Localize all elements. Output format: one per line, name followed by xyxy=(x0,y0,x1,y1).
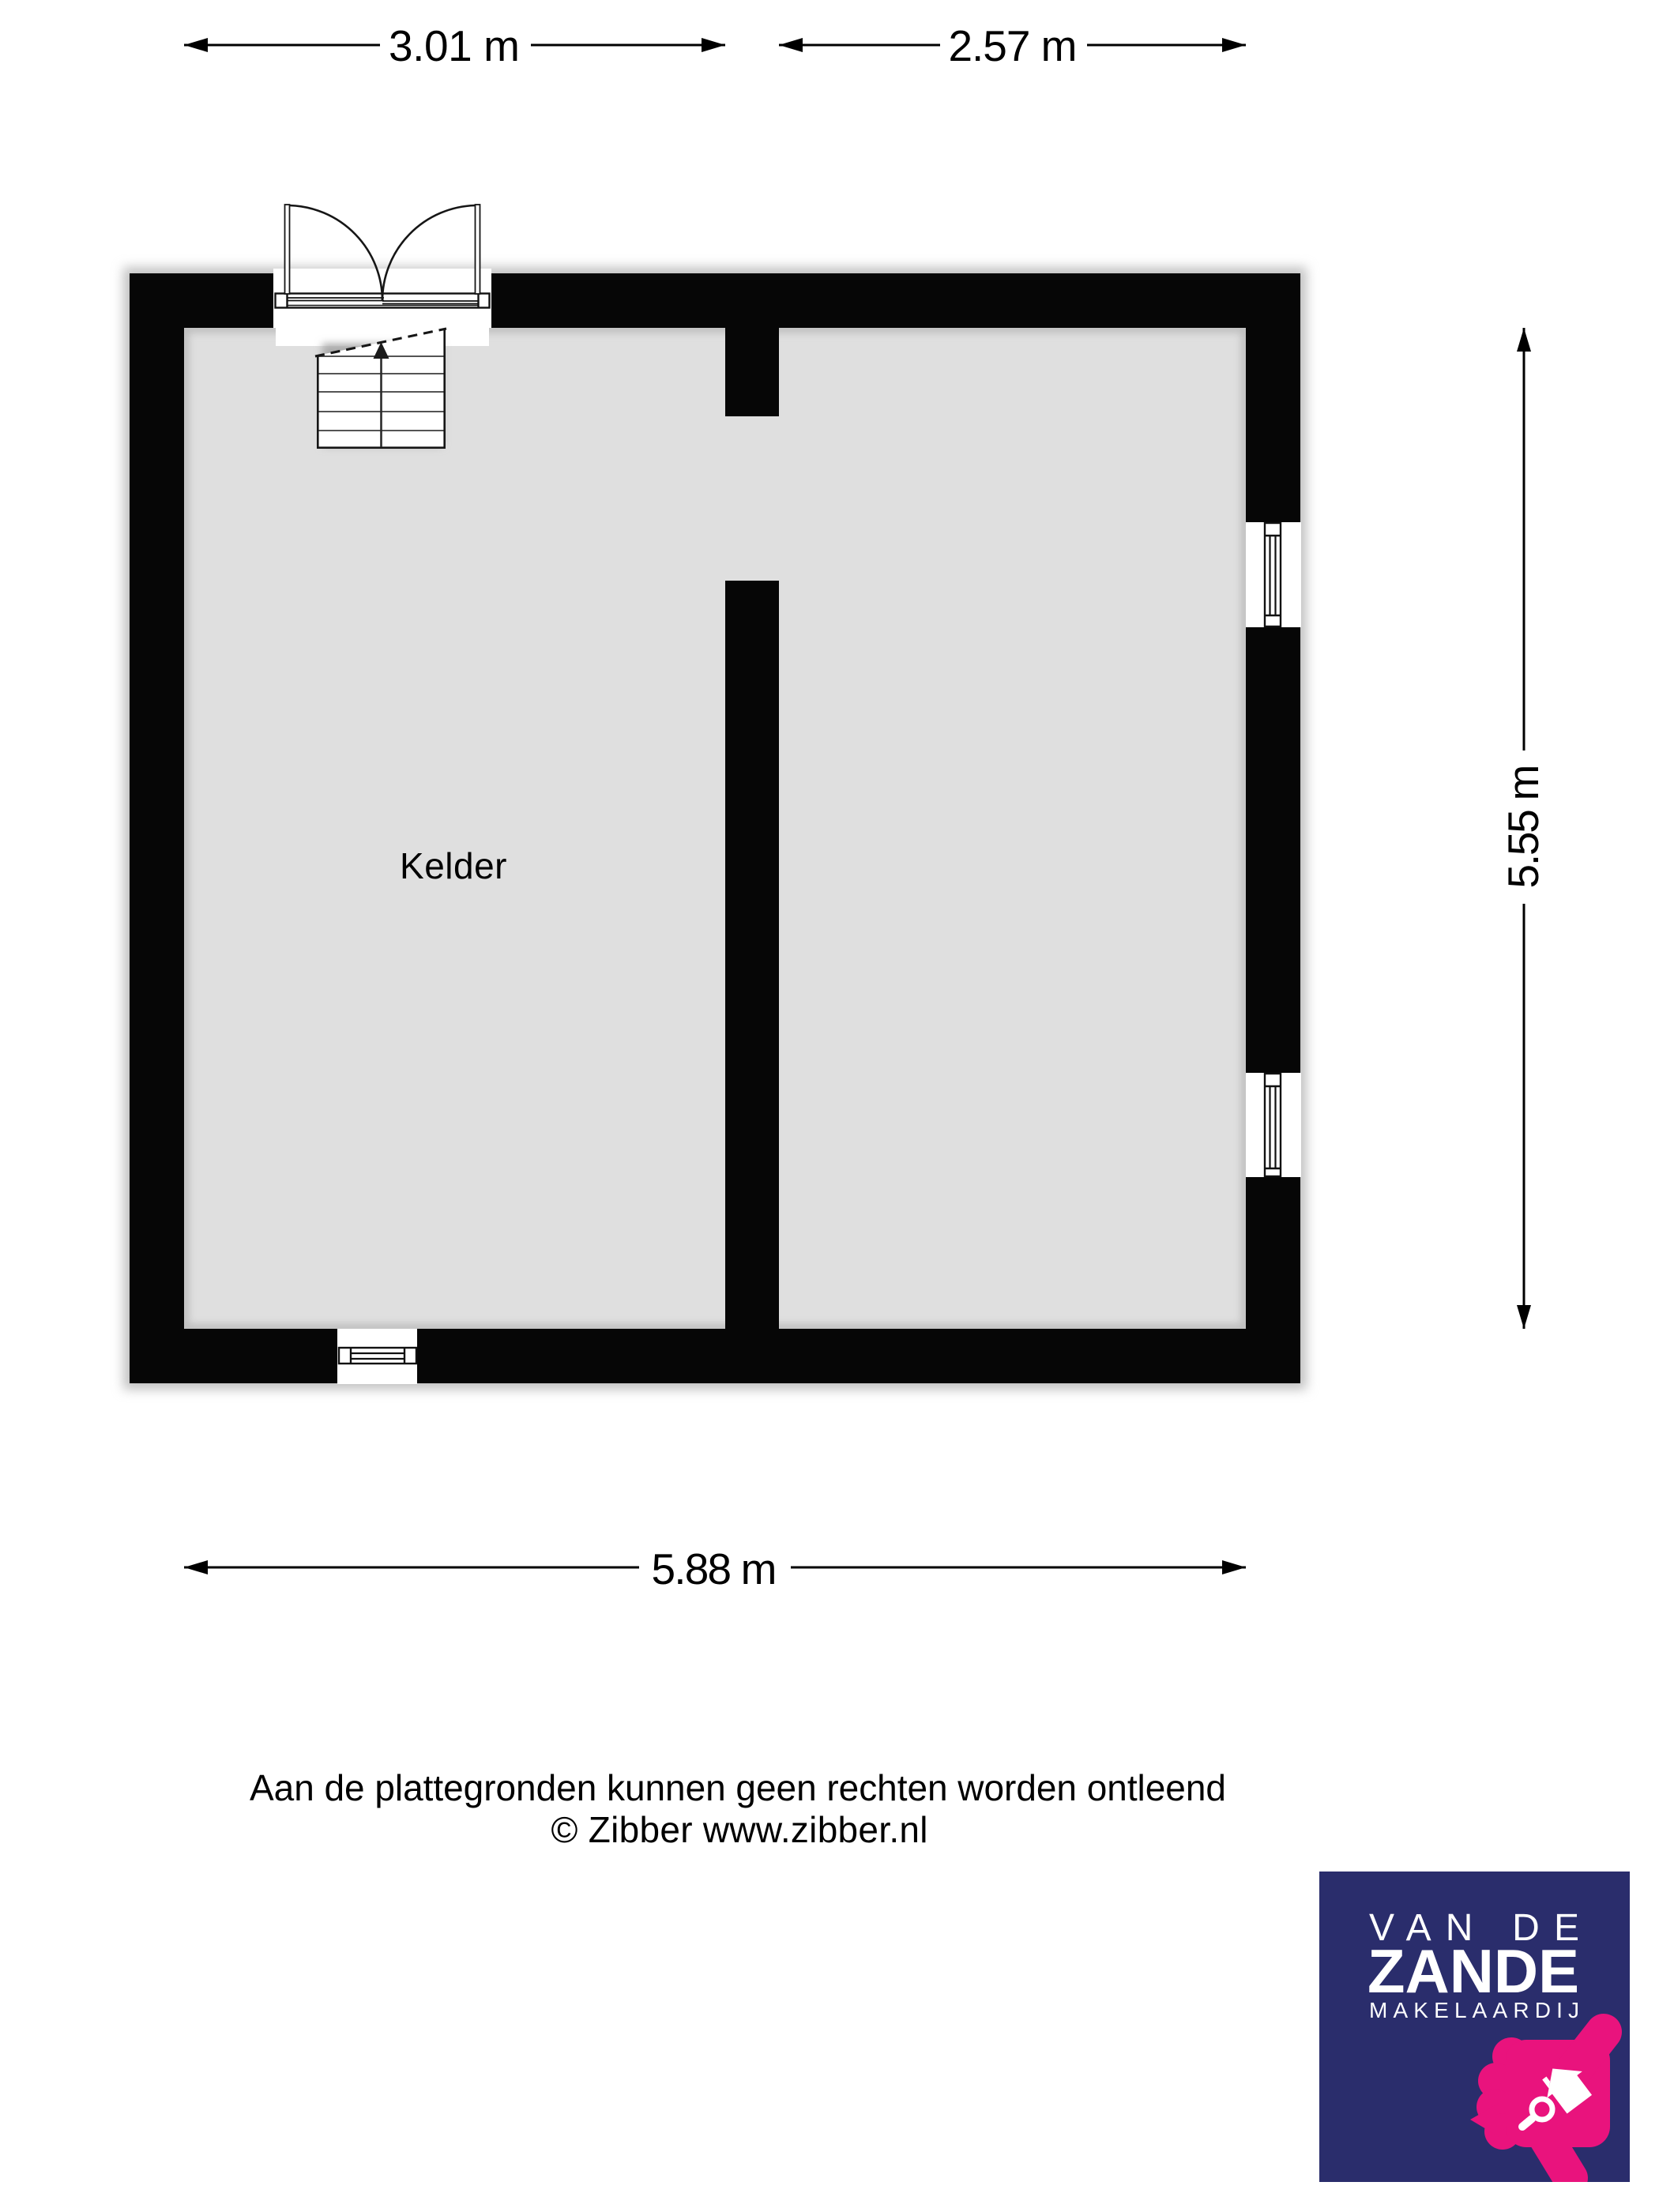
svg-text:Kelder: Kelder xyxy=(400,845,507,886)
svg-text:5.88 m: 5.88 m xyxy=(652,1544,777,1593)
svg-text:3.01 m: 3.01 m xyxy=(389,21,520,70)
svg-text:2.57 m: 2.57 m xyxy=(949,21,1078,70)
svg-text:MAKELAARDIJ: MAKELAARDIJ xyxy=(1369,1998,1579,2022)
svg-text:5.55 m: 5.55 m xyxy=(1499,765,1548,889)
svg-text:© Zibber www.zibber.nl: © Zibber www.zibber.nl xyxy=(551,1809,928,1850)
svg-text:Aan de plattegronden kunnen ge: Aan de plattegronden kunnen geen rechten… xyxy=(250,1767,1226,1808)
svg-text:ZANDE: ZANDE xyxy=(1367,1936,1579,2006)
